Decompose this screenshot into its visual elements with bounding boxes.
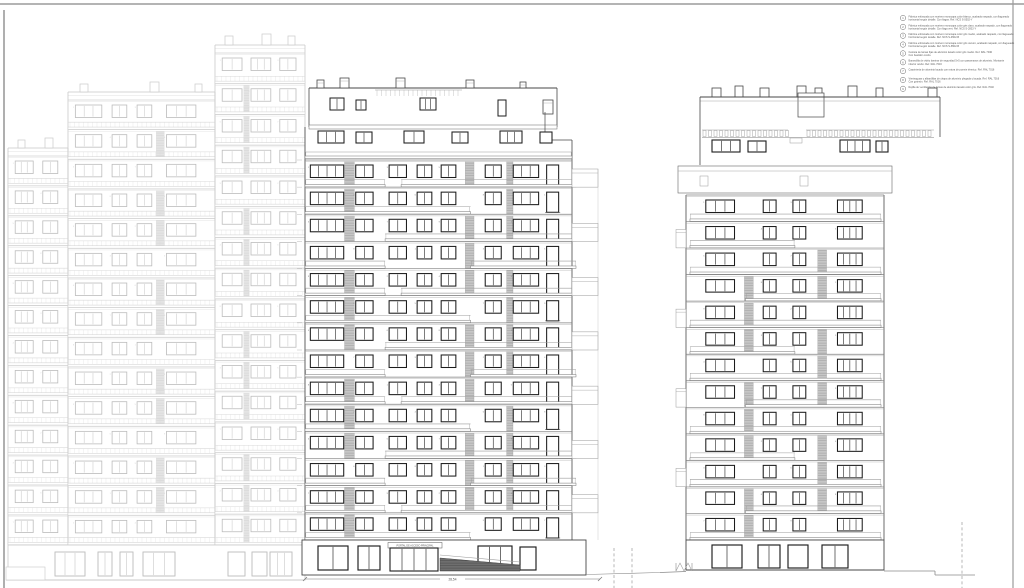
- tiny-label: 1: [835, 282, 837, 284]
- tiny-label: 3: [135, 107, 137, 109]
- elevation-middle: 1357468157928135924635794681792481352468…: [297, 78, 602, 582]
- tiny-label: 3: [387, 167, 389, 169]
- tiny-label: 5: [135, 404, 137, 406]
- tiny-label: 4: [353, 194, 355, 196]
- tiny-label: 5: [13, 223, 15, 225]
- tiny-label: 6: [415, 194, 417, 196]
- tiny-label: 1: [110, 493, 112, 495]
- tiny-label: 7: [110, 315, 112, 317]
- legend-item: 7Carpintería de aluminio lacado con rotu…: [900, 68, 995, 74]
- legend-item-number: 4: [902, 43, 904, 47]
- tiny-label: 1: [790, 415, 792, 417]
- legend-item: 2Fábrica enfoscada con mortero monocapa …: [900, 23, 1012, 30]
- tiny-label: 1: [277, 306, 279, 308]
- tiny-label: 9: [790, 521, 792, 523]
- legend-item: 8Vierteaguas y albardillas de chapa de a…: [900, 76, 999, 83]
- tiny-label: 8: [415, 466, 417, 468]
- legend-item: 6Barandilla de vidrio laminar de segurid…: [900, 59, 1004, 66]
- tiny-label: 8: [703, 415, 705, 417]
- tiny-label: 2: [439, 493, 441, 495]
- tiny-label: 6: [248, 398, 250, 400]
- elevation-left-faint: 1458934782367134657819235467981243568791…: [6, 34, 305, 580]
- legend-item-text: horizontal según detalle. Con llaga vert…: [909, 26, 977, 30]
- legend-item-number: 3: [902, 34, 904, 38]
- tiny-label: 9: [277, 429, 279, 431]
- tiny-label: 4: [277, 491, 279, 493]
- tiny-label: 2: [387, 276, 389, 278]
- tiny-label: 3: [761, 335, 763, 337]
- tiny-label: 6: [135, 285, 137, 287]
- tiny-label: 9: [13, 283, 15, 285]
- tiny-label: 8: [248, 152, 250, 154]
- tiny-label: 5: [220, 122, 222, 124]
- legend-item-number: 7: [902, 69, 904, 73]
- drawing-sheet: 1458934782367134657819235467981243568791…: [0, 0, 1024, 588]
- legend-item-text: Con bastidor oculto.: [909, 53, 932, 57]
- tiny-label: 9: [387, 493, 389, 495]
- tiny-label: 2: [277, 183, 279, 185]
- tiny-label: 3: [544, 466, 546, 468]
- tiny-label: 9: [544, 303, 546, 305]
- dimension-label: 28,54: [449, 578, 457, 582]
- tiny-label: 8: [544, 411, 546, 413]
- tiny-label: 1: [164, 196, 166, 198]
- legend-item-text: Rejilla de ventilación de lamas de alumi…: [909, 85, 995, 89]
- tiny-label: 7: [439, 439, 441, 441]
- tiny-label: 1: [135, 345, 137, 347]
- tiny-label: 5: [277, 368, 279, 370]
- tiny-label: 4: [220, 245, 222, 247]
- tiny-label: 9: [835, 388, 837, 390]
- elevation-drawing-svg: 1458934782367134657819235467981243568791…: [0, 0, 1024, 588]
- tiny-label: 2: [220, 491, 222, 493]
- legend-item: 4Fábrica enfoscada con mortero monocapa …: [900, 41, 1014, 48]
- tiny-label: 7: [40, 373, 42, 375]
- tiny-label: 8: [164, 434, 166, 436]
- tiny-label: 4: [439, 276, 441, 278]
- tiny-label: 6: [353, 466, 355, 468]
- tiny-label: 7: [220, 429, 222, 431]
- tiny-label: 1: [415, 249, 417, 251]
- tiny-label: 1: [13, 163, 15, 165]
- tiny-label: 8: [73, 345, 75, 347]
- tiny-label: 3: [248, 214, 250, 216]
- tiny-label: 6: [277, 245, 279, 247]
- tiny-label: 5: [703, 255, 705, 257]
- tiny-label: 9: [220, 183, 222, 185]
- tiny-label: 8: [439, 330, 441, 332]
- tiny-label: 3: [73, 404, 75, 406]
- tiny-label: 3: [13, 462, 15, 464]
- tiny-label: 8: [761, 282, 763, 284]
- tiny-label: 9: [73, 226, 75, 228]
- tiny-label: 9: [415, 357, 417, 359]
- tiny-label: 3: [703, 468, 705, 470]
- legend-item: 1Fábrica enfoscada con mortero monocapa …: [900, 14, 1009, 21]
- tiny-label: 5: [387, 439, 389, 441]
- tiny-label: 8: [110, 196, 112, 198]
- tiny-label: 4: [703, 361, 705, 363]
- legend: 1Fábrica enfoscada con mortero monocapa …: [900, 14, 1014, 91]
- tiny-label: 6: [761, 494, 763, 496]
- tiny-label: 3: [483, 249, 485, 251]
- tiny-label: 6: [790, 361, 792, 363]
- tiny-label: 4: [248, 91, 250, 93]
- tiny-label: 7: [13, 522, 15, 524]
- tiny-label: 1: [73, 107, 75, 109]
- legend-item-text: horizontal según detalle. Con llagas. Re…: [909, 18, 973, 22]
- tiny-label: 5: [439, 167, 441, 169]
- tiny-label: 2: [761, 441, 763, 443]
- tiny-label: 6: [483, 411, 485, 413]
- tiny-label: 2: [248, 337, 250, 339]
- tiny-label: 3: [277, 60, 279, 62]
- tiny-label: 7: [277, 122, 279, 124]
- tiny-label: 7: [790, 255, 792, 257]
- tiny-label: 4: [415, 411, 417, 413]
- tiny-label: 6: [110, 434, 112, 436]
- tiny-label: 1: [353, 520, 355, 522]
- tiny-label: 7: [387, 221, 389, 223]
- legend-item: 9Rejilla de ventilación de lamas de alum…: [900, 85, 994, 91]
- tiny-label: 3: [110, 256, 112, 258]
- tiny-label: 3: [790, 202, 792, 204]
- legend-item: 3Fábrica enfoscada con mortero monocapa …: [900, 32, 1014, 39]
- tiny-label: 5: [308, 221, 310, 223]
- tiny-label: 8: [13, 403, 15, 405]
- tiny-label: 1: [387, 384, 389, 386]
- tiny-label: 7: [135, 167, 137, 169]
- tiny-label: 1: [544, 194, 546, 196]
- tiny-label: 9: [439, 221, 441, 223]
- tiny-label: 3: [308, 439, 310, 441]
- tiny-label: 9: [164, 315, 166, 317]
- tiny-label: 2: [353, 411, 355, 413]
- tiny-label: 4: [308, 330, 310, 332]
- legend-item-text: horizontal según detalle. Ref. NCS S-450…: [909, 35, 960, 39]
- tiny-label: 5: [483, 520, 485, 522]
- tiny-label: 7: [761, 388, 763, 390]
- legend-item-number: 6: [902, 60, 904, 64]
- legend-item-number: 9: [902, 87, 904, 91]
- tiny-label: 8: [40, 253, 42, 255]
- tiny-label: 4: [73, 285, 75, 287]
- tiny-label: 4: [761, 229, 763, 231]
- tiny-label: 5: [544, 249, 546, 251]
- tiny-label: 4: [110, 137, 112, 139]
- dimension-line: 28,54: [303, 576, 602, 582]
- tiny-label: 5: [790, 468, 792, 470]
- tiny-label: 3: [439, 384, 441, 386]
- tiny-label: 6: [164, 137, 166, 139]
- tiny-label: 5: [835, 335, 837, 337]
- tiny-label: 4: [835, 441, 837, 443]
- tiny-label: 8: [308, 384, 310, 386]
- tiny-label: 5: [415, 303, 417, 305]
- legend-item-text: Con goterón. Ref. RAL 7016: [909, 79, 942, 83]
- tiny-label: 7: [544, 520, 546, 522]
- tiny-label: 7: [308, 493, 310, 495]
- tiny-label: 1: [703, 202, 705, 204]
- legend-item: 5Celosía de lamas fijas de aluminio laca…: [900, 50, 992, 57]
- legend-item-number: 5: [902, 51, 904, 55]
- tiny-label: 5: [164, 256, 166, 258]
- legend-item-text: inferior oculto. Ref. RAL 7016: [909, 62, 943, 66]
- legend-item-number: 1: [902, 16, 904, 20]
- tiny-label: 1: [220, 60, 222, 62]
- tiny-label: 4: [164, 374, 166, 376]
- tiny-label: 2: [790, 308, 792, 310]
- legend-item-text: Carpintería de aluminio lacado con rotur…: [909, 68, 995, 72]
- tiny-label: 9: [308, 276, 310, 278]
- tiny-label: 9: [703, 308, 705, 310]
- tiny-label: 7: [248, 275, 250, 277]
- tiny-label: 6: [835, 229, 837, 231]
- tiny-label: 3: [164, 493, 166, 495]
- tiny-label: 5: [511, 384, 513, 386]
- tiny-label: 1: [483, 466, 485, 468]
- tiny-label: 4: [135, 523, 137, 525]
- tiny-label: 6: [40, 492, 42, 494]
- tiny-label: 8: [835, 494, 837, 496]
- tiny-label: 2: [135, 226, 137, 228]
- tiny-label: 8: [220, 306, 222, 308]
- tiny-label: 6: [387, 330, 389, 332]
- tiny-label: 7: [703, 521, 705, 523]
- tiny-label: 3: [40, 313, 42, 315]
- tiny-label: 2: [40, 432, 42, 434]
- tiny-label: 1: [248, 460, 250, 462]
- tiny-label: 3: [353, 303, 355, 305]
- tiny-label: 5: [248, 521, 250, 523]
- tiny-label: 8: [353, 249, 355, 251]
- tiny-label: 1: [308, 167, 310, 169]
- legend-item-text: horizontal según detalle. Ref. NCS S-650…: [909, 44, 960, 48]
- tiny-label: 7: [483, 303, 485, 305]
- elevation-right: 13465781923546798124356879: [660, 86, 975, 575]
- tiny-label: 3: [415, 520, 417, 522]
- tiny-label: 8: [483, 194, 485, 196]
- tiny-label: 7: [353, 357, 355, 359]
- legend-item-number: 2: [902, 25, 904, 29]
- tiny-label: 5: [73, 167, 75, 169]
- tiny-label: 3: [220, 368, 222, 370]
- tiny-label: 9: [135, 463, 137, 465]
- tiny-label: 2: [73, 523, 75, 525]
- tiny-label: 2: [483, 357, 485, 359]
- tiny-label: 4: [40, 193, 42, 195]
- tiny-label: 4: [544, 357, 546, 359]
- legend-item-number: 8: [902, 78, 904, 82]
- tiny-label: 4: [13, 343, 15, 345]
- tiny-label: 7: [73, 463, 75, 465]
- tiny-label: 2: [110, 374, 112, 376]
- entrance-sign: PORTAL DE ACCESO PRINCIPAL: [397, 544, 435, 547]
